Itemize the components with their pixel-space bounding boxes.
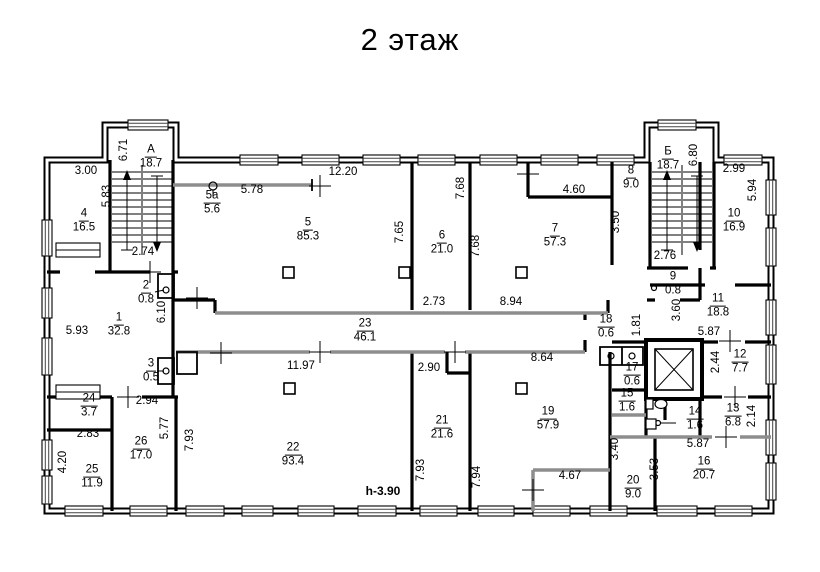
window — [128, 120, 168, 130]
room-number: 17 — [624, 362, 641, 376]
room-number: 9 — [668, 271, 678, 285]
dimension-label: 7.94 — [471, 466, 483, 488]
room-label-18: 180.6 — [598, 314, 615, 341]
room-number: 10 — [726, 208, 743, 222]
room-label-13: 136.8 — [725, 403, 742, 430]
window — [766, 300, 776, 335]
window — [766, 180, 776, 215]
window — [186, 506, 224, 516]
window — [478, 506, 514, 516]
room-label-1: 132.8 — [108, 312, 130, 339]
room-area: 17.0 — [130, 450, 152, 463]
room-area: 57.9 — [537, 420, 559, 433]
room-label-5: 585.3 — [297, 217, 319, 244]
stair-area: 18.7 — [657, 160, 679, 173]
room-area: 0.8 — [665, 285, 681, 298]
room-label-14: 141.6 — [687, 406, 704, 433]
floor-plan-drawing — [0, 0, 820, 572]
room-number: 3 — [146, 358, 156, 372]
dimension-label: 6.71 — [118, 139, 130, 161]
window — [42, 288, 52, 318]
room-area: 6.8 — [725, 417, 742, 430]
room-number: 5а — [204, 190, 221, 204]
room-area: 5.6 — [204, 204, 221, 217]
dimension-label: 7.68 — [455, 177, 467, 199]
room-area: 0.5 — [143, 372, 159, 385]
stair-label-2: Б18.7 — [657, 146, 679, 173]
dimension-label: 6.80 — [688, 144, 700, 166]
dimension-label: 4.20 — [57, 451, 69, 473]
interior-walls — [47, 160, 771, 511]
room-number: 16 — [696, 456, 713, 470]
room-number: 7 — [550, 223, 560, 237]
room-label-5а: 5а5.6 — [204, 190, 221, 217]
room-number: 2 — [141, 280, 151, 294]
dimension-label: 2.44 — [710, 351, 722, 373]
room-label-9: 90.8 — [665, 271, 681, 298]
radiator-symbol — [56, 243, 100, 257]
room-label-16: 1620.7 — [693, 456, 715, 483]
room-number: 20 — [625, 475, 642, 489]
room-area: 18.8 — [707, 307, 729, 320]
room-number: 6 — [437, 230, 447, 244]
window — [533, 506, 570, 516]
dimension-label: 2.73 — [423, 296, 445, 308]
room-label-21: 2121.6 — [431, 415, 453, 442]
room-area: 9.0 — [623, 179, 639, 192]
room-area: 0.6 — [598, 328, 615, 341]
room-number: 24 — [81, 393, 98, 407]
room-label-22: 2293.4 — [282, 442, 304, 469]
dimension-label: 2.94 — [136, 395, 158, 407]
window — [597, 155, 634, 165]
column-mark — [283, 267, 294, 278]
dimension-label: 2.90 — [418, 362, 440, 374]
window — [658, 120, 696, 130]
dimension-label: 4.60 — [563, 184, 585, 196]
dimension-label: 3.53 — [649, 458, 661, 480]
room-area: 57.3 — [544, 237, 566, 250]
window — [363, 155, 400, 165]
room-area: 9.0 — [625, 489, 642, 502]
room-area: 3.7 — [81, 407, 98, 420]
room-area: 16.5 — [73, 222, 95, 235]
stair-letter: А — [145, 144, 157, 158]
window — [42, 338, 52, 375]
column-mark — [284, 383, 295, 394]
dimension-label: 2.99 — [723, 163, 745, 175]
dimension-label: 7.68 — [470, 235, 482, 257]
dimension-label: 5.78 — [241, 184, 263, 196]
elevator — [646, 340, 702, 399]
room-number: 8 — [626, 165, 636, 179]
dimension-label: 5.94 — [747, 179, 759, 201]
window — [302, 155, 339, 165]
room-label-23: 2346.1 — [354, 318, 376, 345]
window — [418, 155, 455, 165]
column-mark — [516, 267, 527, 278]
room-area: 16.9 — [723, 222, 745, 235]
window — [541, 155, 578, 165]
room-label-17: 170.6 — [624, 362, 641, 389]
toilet-icon — [646, 399, 667, 409]
dimension-label: 5.93 — [66, 325, 88, 337]
room-area: 93.4 — [282, 456, 304, 469]
window — [766, 228, 776, 266]
room-label-4: 416.5 — [73, 208, 95, 235]
window — [42, 220, 52, 256]
room-number: 19 — [540, 406, 557, 420]
dimension-label: 3.60 — [671, 299, 683, 321]
dimension-label: 7.65 — [394, 221, 406, 243]
window — [766, 345, 776, 384]
stair-label-1: А18.7 — [140, 144, 162, 171]
sink-icon — [646, 419, 656, 429]
dimension-label: 4.67 — [559, 470, 581, 482]
dimension-label: 7.93 — [415, 459, 427, 481]
window — [358, 506, 396, 516]
room-label-8: 89.0 — [623, 165, 639, 192]
dimension-label: 3.50 — [610, 211, 622, 233]
room-number: 23 — [357, 318, 374, 332]
window — [420, 506, 457, 516]
room-area: 85.3 — [297, 231, 319, 244]
room-label-3: 30.5 — [143, 358, 159, 385]
staircase-b — [652, 165, 712, 255]
dimension-label: 6.10 — [156, 301, 168, 323]
room-number: 11 — [710, 293, 726, 307]
room-area: 32.8 — [108, 326, 130, 339]
room-area: 1.6 — [619, 402, 636, 415]
dimension-label: 3.00 — [75, 165, 97, 177]
room-label-26: 2617.0 — [130, 436, 152, 463]
room-number: 15 — [619, 388, 636, 402]
dimension-label: 3.40 — [609, 438, 621, 460]
dimension-label: 2.14 — [746, 405, 758, 427]
room-label-6: 621.0 — [431, 230, 453, 257]
room-number: 4 — [79, 208, 89, 222]
room-area: 0.8 — [138, 294, 154, 307]
window — [715, 506, 752, 516]
room-label-12: 127.7 — [732, 349, 749, 376]
room-number: 18 — [598, 314, 615, 328]
dimension-label: 7.93 — [184, 429, 196, 451]
window — [42, 476, 52, 504]
ceiling-height-note: h-3.90 — [366, 484, 401, 498]
room-label-20: 209.0 — [625, 475, 642, 502]
column-mark — [399, 267, 410, 278]
window — [242, 506, 273, 516]
room-area: 7.7 — [732, 363, 749, 376]
floor-plan-page: 2 этаж 132.820.830.5416.5585.35а5.6621.0… — [0, 0, 820, 572]
window — [65, 506, 103, 516]
window — [657, 506, 697, 516]
room-number: 26 — [133, 436, 150, 450]
room-label-11: 1118.8 — [707, 293, 729, 320]
dimension-label: 2.74 — [132, 246, 154, 258]
room-label-19: 1957.9 — [537, 406, 559, 433]
dimension-label: 5.87 — [698, 326, 720, 338]
room-area: 1.6 — [687, 420, 704, 433]
window — [130, 506, 167, 516]
room-area: 21.6 — [431, 429, 453, 442]
room-label-24: 243.7 — [81, 393, 98, 420]
room-area: 21.0 — [431, 244, 453, 257]
room-label-10: 1016.9 — [723, 208, 745, 235]
room-number: 5 — [303, 217, 313, 231]
room-area: 0.6 — [624, 376, 641, 389]
window — [42, 440, 52, 470]
room-number: 21 — [434, 415, 451, 429]
dimension-label: 11.97 — [287, 360, 315, 372]
room-label-2: 20.8 — [138, 280, 154, 307]
room-label-7: 757.3 — [544, 223, 566, 250]
dimension-label: 5.87 — [687, 438, 709, 450]
column-mark — [516, 383, 527, 394]
room-number: 13 — [725, 403, 742, 417]
dimension-label: 1.81 — [631, 314, 643, 336]
shaft-circle-symbol — [629, 353, 635, 359]
window — [298, 506, 334, 516]
dimension-label: 8.64 — [531, 352, 553, 364]
dimension-label: 5.77 — [159, 417, 171, 439]
room-label-25: 2511.9 — [81, 464, 103, 491]
dimension-label: 5.83 — [101, 185, 113, 207]
stair-letter: Б — [662, 146, 674, 160]
staircase-a — [112, 165, 172, 255]
room-number: 12 — [732, 349, 749, 363]
dimension-label: 8.94 — [500, 296, 522, 308]
window — [240, 155, 278, 165]
dimension-label: 12.20 — [329, 166, 358, 178]
room-number: 22 — [285, 442, 302, 456]
dimension-label: 2.83 — [77, 428, 99, 440]
stair-area: 18.7 — [140, 158, 162, 171]
room-area: 46.1 — [354, 332, 376, 345]
dimension-label: 2.76 — [654, 250, 676, 262]
room-area: 11.9 — [81, 478, 103, 491]
room-area: 20.7 — [693, 470, 715, 483]
room-label-15: 151.6 — [619, 388, 636, 415]
window — [766, 463, 776, 500]
room-number: 25 — [84, 464, 101, 478]
room-number: 14 — [687, 406, 704, 420]
window — [480, 155, 517, 165]
room-number: 1 — [114, 312, 124, 326]
